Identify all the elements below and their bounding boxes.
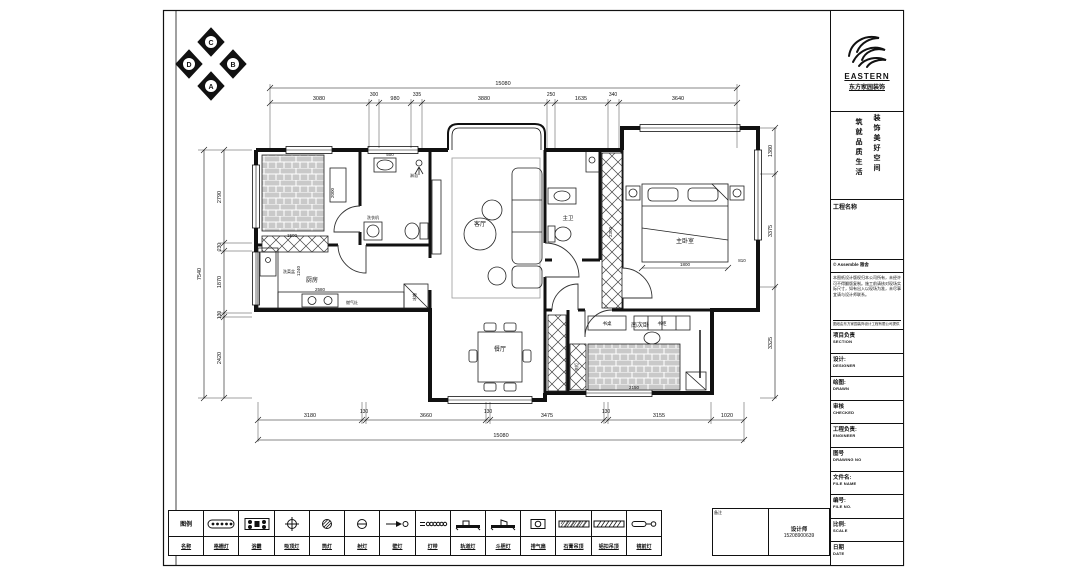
kitchen-sink <box>260 252 276 276</box>
coffee-table-small <box>482 200 502 220</box>
lighting-legend: 图例 名称 格栅灯 浴霸 吸顶灯 筒灯 射灯 壁灯 灯带 轨道灯 斗胆灯 排气扇 <box>168 510 662 556</box>
compass-letter-b: B <box>230 62 235 69</box>
svg-text:1635: 1635 <box>575 96 587 102</box>
svg-text:2000: 2000 <box>330 187 335 198</box>
svg-text:3475: 3475 <box>541 413 553 419</box>
row-file-no: 编号:FILE NO. <box>831 495 903 519</box>
bookcase-label: 书柜 <box>658 320 667 327</box>
grille-light-icon <box>206 517 236 531</box>
legend-spotlight: 射灯 <box>344 511 379 555</box>
svg-text:335: 335 <box>413 92 422 98</box>
dimension-texts: 15080 3080 300 980 335 3880 250 1635 340… <box>197 81 774 439</box>
svg-text:2420: 2420 <box>217 352 223 364</box>
dimensions <box>198 84 778 443</box>
bath-heater-icon <box>242 517 272 531</box>
drawing-sheet: C D B A <box>0 0 1074 576</box>
svg-text:2580: 2580 <box>315 287 326 292</box>
designer-contact-cell: 设计师 15208900639 <box>768 508 830 556</box>
south-bed-label: 南次卧 <box>631 321 649 329</box>
blanket-fold <box>712 184 728 200</box>
remark-cell: 备注 <box>712 508 769 556</box>
svg-text:3640: 3640 <box>672 96 684 102</box>
svg-text:3155: 3155 <box>653 413 665 419</box>
compass-rose: C D B A <box>176 28 246 100</box>
remark-label: 备注 <box>714 510 722 515</box>
wardrobe-nw <box>262 236 328 252</box>
svg-text:500: 500 <box>386 152 394 157</box>
fridge-label: 冰箱 <box>411 293 417 301</box>
floor-plan-svg: C D B A <box>0 0 1074 576</box>
svg-text:230: 230 <box>217 243 223 252</box>
legend-bath-heater: 浴霸 <box>238 511 273 555</box>
wardrobe-label: 衣柜 <box>573 363 579 371</box>
shower-glass <box>586 152 600 172</box>
row-checked: 审核CHECKED <box>831 401 903 425</box>
svg-text:1380: 1380 <box>768 145 774 157</box>
ceiling-light-icon <box>277 517 307 531</box>
row-drawing-no: 图号DRAWING NO <box>831 448 903 472</box>
downlight-icon <box>312 517 342 531</box>
svg-text:1870: 1870 <box>217 276 223 288</box>
led-strip-icon <box>418 517 448 531</box>
legend-aluminum-ceiling: 铝扣吊顶 <box>591 511 626 555</box>
legend-wall-lamp: 壁灯 <box>379 511 414 555</box>
gypsum-ceiling-icon <box>557 517 591 531</box>
sofa <box>512 168 542 264</box>
designer-phone: 15208900639 <box>784 533 815 539</box>
svg-text:250: 250 <box>547 92 556 98</box>
toilet-bowl-2 <box>555 227 571 241</box>
row-engineer: 工程负责:ENGINEER <box>831 424 903 448</box>
compass-letter-c: C <box>208 40 213 47</box>
svg-text:130: 130 <box>360 409 369 415</box>
master-bath-label: 主卫 <box>562 214 574 222</box>
eastern-swirl-logo-icon <box>845 32 889 70</box>
copyright-line: © Assemble 雅舍 <box>831 260 903 273</box>
svg-text:3080: 3080 <box>313 96 325 102</box>
svg-text:130: 130 <box>217 311 223 320</box>
wall-lamp-icon <box>382 517 412 531</box>
dining-table <box>478 332 522 382</box>
row-drawn: 绘图:DRAWN <box>831 377 903 401</box>
legend-downlight: 筒灯 <box>309 511 344 555</box>
slogan-left-column: 筑就品质生活 <box>853 118 863 199</box>
toilet-tank <box>420 223 428 239</box>
svg-text:2790: 2790 <box>217 191 223 203</box>
pillow-right <box>688 188 718 201</box>
company-name-cn: 东方家园装饰 <box>849 82 885 91</box>
legend-exhaust-fan: 排气扇 <box>520 511 555 555</box>
svg-text:980: 980 <box>390 96 399 102</box>
kitchen-label: 厨房 <box>306 276 318 284</box>
svg-text:1240: 1240 <box>296 265 301 276</box>
legend-track-light: 轨道灯 <box>450 511 485 555</box>
side-table <box>488 267 506 285</box>
svg-text:340: 340 <box>609 92 618 98</box>
track-light-icon <box>453 517 483 531</box>
spotlight-icon <box>347 517 377 531</box>
svg-text:130: 130 <box>484 409 493 415</box>
washer-label: 洗衣机 <box>367 214 379 220</box>
company-slogan: 筑就品质生活 装饰美好空间 <box>831 112 903 200</box>
sofa-chaise <box>512 266 542 288</box>
svg-text:3660: 3660 <box>420 413 432 419</box>
compass-letter-d: D <box>186 62 191 69</box>
gas-stove <box>302 294 338 307</box>
hall-cabinet <box>548 315 566 391</box>
toilet-bowl <box>405 223 419 239</box>
dining-label: 餐厅 <box>494 345 506 353</box>
master-bed-label: 主卧室 <box>676 237 694 245</box>
shower-head-icon-2 <box>589 157 595 163</box>
legend-mirror-light: 镜前灯 <box>626 511 661 555</box>
legend-gimbal-light: 斗胆灯 <box>485 511 520 555</box>
svg-text:3325: 3325 <box>768 337 774 349</box>
living-room-label: 客厅 <box>474 220 486 228</box>
stove-label: 燃气灶 <box>346 299 358 305</box>
legend-ceiling-light: 吸顶灯 <box>274 511 309 555</box>
desk-label: 书桌 <box>603 320 612 327</box>
tatami-bed-south <box>588 344 680 390</box>
slogan-right-column: 装饰美好空间 <box>871 114 881 199</box>
shower-label: 淋浴 <box>410 172 418 178</box>
legend-grille-light: 格栅灯 <box>203 511 238 555</box>
nightstand-right <box>730 186 744 200</box>
pillow-left <box>648 188 678 201</box>
tv-cabinet <box>432 180 441 254</box>
row-file-name: 文件名:FILE NAME <box>831 472 903 496</box>
svg-text:15080: 15080 <box>495 81 510 87</box>
basin <box>377 160 393 170</box>
project-name-cell: 工程名称 <box>831 200 903 260</box>
master-bed <box>642 184 728 262</box>
svg-text:3880: 3880 <box>478 96 490 102</box>
notes-cell: 本图纸设计版权归本公司所有，未经许可不得翻版复制。施工前请核对现场实际尺寸，如有… <box>831 273 903 330</box>
svg-text:7540: 7540 <box>197 268 203 280</box>
exhaust-fan-icon <box>523 517 553 531</box>
aluminum-ceiling-icon <box>592 517 626 531</box>
notes-footer: 图纸由东方家园装饰设计工程有限公司提供 <box>833 320 901 328</box>
svg-text:810: 810 <box>738 258 746 263</box>
svg-text:300: 300 <box>370 92 379 98</box>
svg-text:3180: 3180 <box>304 413 316 419</box>
row-scale: 比例:SCALE <box>831 519 903 543</box>
furniture <box>258 152 744 391</box>
toilet-tank-2 <box>548 226 555 242</box>
notes-text: 本图纸设计版权归本公司所有，未经许可不得翻版复制。施工前请核对现场实际尺寸，如有… <box>833 275 901 297</box>
row-date: 日期DATE <box>831 542 903 565</box>
compass-letter-a: A <box>208 84 213 91</box>
nightstand-left <box>626 186 640 200</box>
tatami-bed-nw <box>262 155 324 231</box>
company-logo-block: EASTERN 东方家园装饰 <box>831 11 903 112</box>
title-block: EASTERN 东方家园装饰 筑就品质生活 装饰美好空间 工程名称 © Asse… <box>830 10 904 566</box>
legend-header-col: 图例 名称 <box>169 511 203 555</box>
svg-text:3375: 3375 <box>768 225 774 237</box>
designer-name: 设计师 <box>791 525 808 533</box>
row-designer: 设计:DESIGNER <box>831 354 903 378</box>
kitchen-counter-bottom <box>278 292 404 308</box>
svg-text:1800: 1800 <box>680 262 691 267</box>
svg-text:1020: 1020 <box>721 413 733 419</box>
svg-text:15080: 15080 <box>493 433 508 439</box>
gimbal-light-icon <box>488 517 518 531</box>
mirror-light-icon <box>629 517 659 531</box>
legend-gypsum-ceiling: 石膏吊顶 <box>555 511 590 555</box>
company-name-en: EASTERN <box>844 72 889 81</box>
svg-text:130: 130 <box>602 409 611 415</box>
svg-text:2300: 2300 <box>608 226 613 237</box>
kitchen-counter-left <box>258 248 278 308</box>
desk-chair <box>644 332 660 344</box>
shower-head-icon <box>416 160 422 166</box>
svg-text:1500: 1500 <box>287 233 298 238</box>
vanity <box>548 188 576 204</box>
legend-led-strip: 灯带 <box>415 511 450 555</box>
veg-sink-label: 洗菜盆 <box>283 268 295 274</box>
svg-text:2150: 2150 <box>629 385 640 390</box>
row-section: 项目负责SECTION <box>831 330 903 354</box>
